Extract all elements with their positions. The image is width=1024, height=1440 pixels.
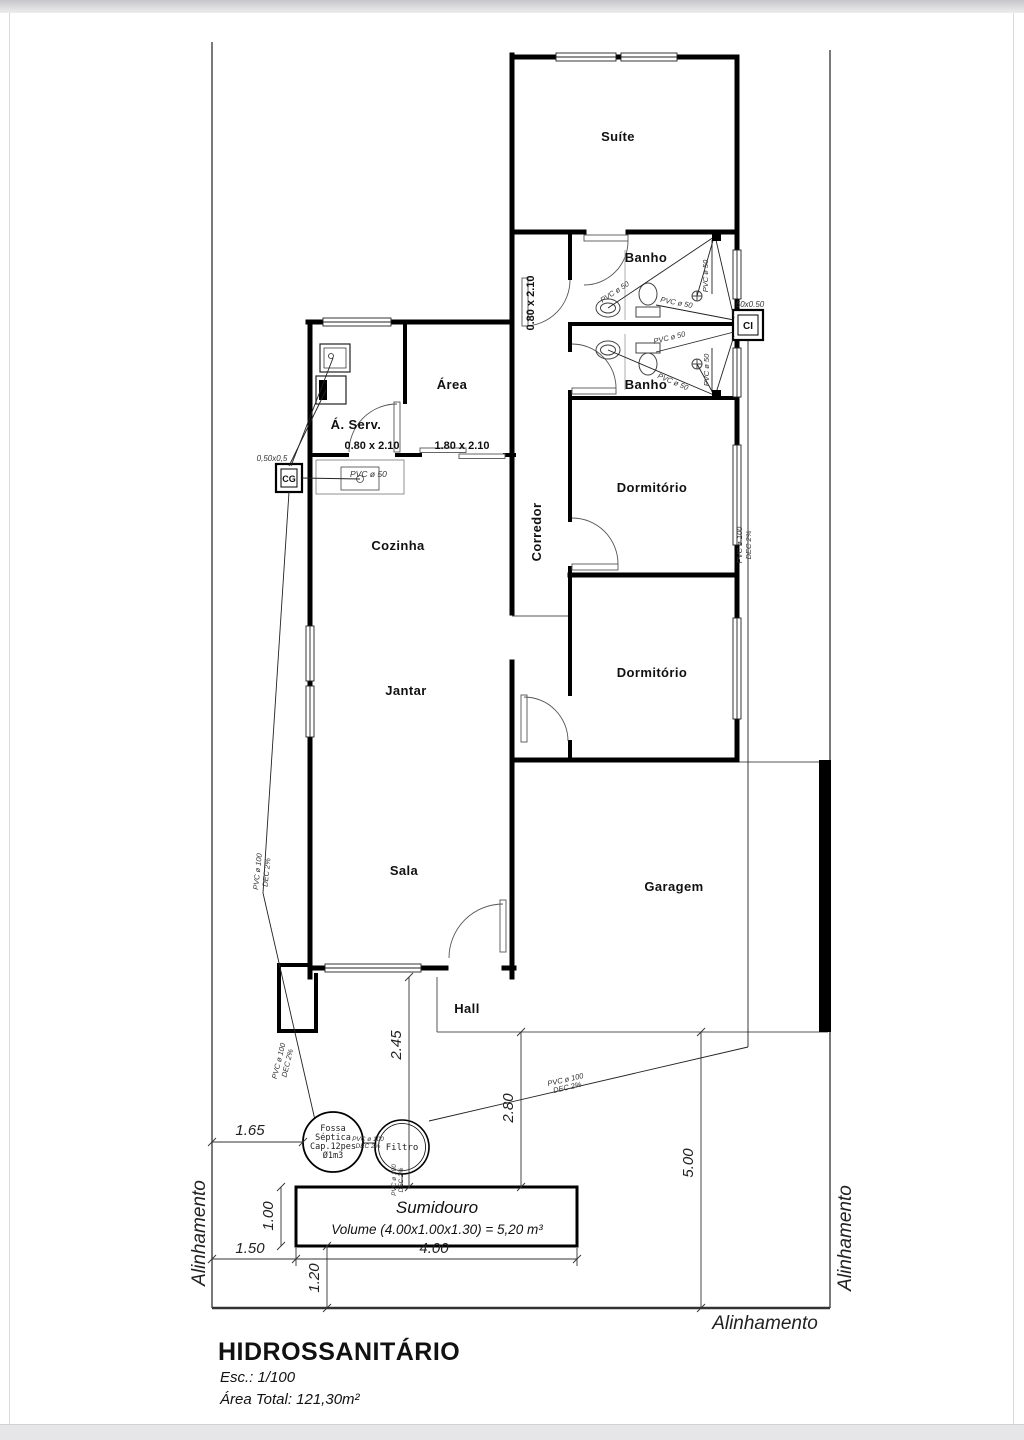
garage-right-pillar <box>819 760 831 1032</box>
room-label-garagem: Garagem <box>644 879 703 894</box>
sumidouro-title: Sumidouro <box>396 1198 478 1217</box>
pipe-label-left-upper: PVC ø 100 DEC 2% <box>251 852 273 891</box>
dim-165: 1.65 <box>235 1122 265 1139</box>
fossa-line4: Ø1m3 <box>323 1150 343 1161</box>
ci-size-label: 50x0.50 <box>736 300 765 309</box>
pipe-label-ci-run: PVC ø 100 DEC 2% <box>735 526 753 564</box>
pipe-label-ci-diagonal: PVC ø 100 DEC 2% <box>547 1071 587 1096</box>
sheet-total-area: Área Total: 121,30m² <box>219 1391 361 1408</box>
drawing-sheet: Fossa Séptica Cap.12pes Ø1m3 Filtro Sumi… <box>0 0 1024 1440</box>
dim-400: 4.00 <box>419 1240 449 1257</box>
windows <box>306 53 741 972</box>
pipe-label-fossa-filtro: PVC ø 100 DEC 2% <box>352 1136 384 1150</box>
dimension-lines <box>208 973 705 1312</box>
alinhamento-bottom: Alinhamento <box>711 1313 818 1334</box>
svg-text:DEC 2%: DEC 2% <box>356 1143 381 1150</box>
room-label-servico: Á. Serv. <box>331 417 382 432</box>
pipe-label-cozinha: PVC ø 50 <box>350 469 387 479</box>
dim-500: 5.00 <box>680 1148 697 1178</box>
svg-text:DEC 2%: DEC 2% <box>260 857 272 887</box>
cg-label: CG <box>282 474 296 484</box>
dim-120: 1.20 <box>306 1263 323 1293</box>
scan-edge-bottom <box>0 1424 1024 1440</box>
sheet-scale: Esc.: 1/100 <box>220 1369 296 1386</box>
alinhamento-left: Alinhamento <box>189 1180 210 1287</box>
door-size-corredor: 0.80 x 2.10 <box>525 275 537 330</box>
doors <box>349 235 628 958</box>
room-label-suite: Suíte <box>601 129 635 144</box>
sumidouro-volume: Volume (4.00x1.00x1.30) = 5,20 m³ <box>331 1222 543 1237</box>
room-label-banho-suite: Banho <box>625 250 667 265</box>
pipe-label-filtro-sumidouro: PVC ø 100 DEC 2% <box>391 1164 405 1196</box>
dim-245: 2.45 <box>388 1030 405 1061</box>
cg-size-label: 0,50x0,5 <box>257 454 288 463</box>
pipe-label-b1-toilet: PVC ø 50 <box>660 295 694 310</box>
svg-text:DEC 2%: DEC 2% <box>398 1167 405 1192</box>
pipe-runs <box>263 232 748 1187</box>
dim-150: 1.50 <box>235 1240 265 1257</box>
dim-280: 2.80 <box>500 1093 517 1124</box>
room-label-cozinha: Cozinha <box>371 538 425 553</box>
pipe-label-b2-drain: PVC ø 50 <box>702 353 711 386</box>
alinhamento-right: Alinhamento <box>835 1185 856 1292</box>
room-label-area: Área <box>437 377 468 392</box>
room-label-jantar: Jantar <box>385 683 426 698</box>
room-label-dorm1: Dormitório <box>617 480 687 495</box>
room-label-dorm2: Dormitório <box>617 665 687 680</box>
pipe-label-left-lower: PVC ø 100 DEC 2% <box>270 1041 297 1082</box>
laundry-tank <box>320 344 350 372</box>
room-label-sala: Sala <box>390 863 419 878</box>
filtro: Filtro <box>375 1120 429 1174</box>
svg-text:PVC ø 100: PVC ø 100 <box>352 1136 384 1143</box>
dim-100: 1.00 <box>260 1201 277 1231</box>
ci-label: CI <box>743 321 753 332</box>
room-label-hall: Hall <box>454 1001 479 1016</box>
door-size-servico: 0.80 x 2.10 <box>344 440 399 452</box>
room-label-corredor: Corredor <box>529 503 544 562</box>
pipe-label-b2-toilet: PVC ø 50 <box>653 329 688 346</box>
svg-text:PVC ø 100: PVC ø 100 <box>735 526 744 564</box>
floor-plan-svg: Fossa Séptica Cap.12pes Ø1m3 Filtro Sumi… <box>0 0 1024 1440</box>
svg-text:PVC ø 100: PVC ø 100 <box>391 1164 398 1196</box>
pipe-label-b1-drain: PVC ø 50 <box>701 259 710 292</box>
sumidouro: Sumidouro Volume (4.00x1.00x1.30) = 5,20… <box>296 1187 577 1246</box>
svg-text:DEC 2%: DEC 2% <box>744 530 753 559</box>
sheet-title: HIDROSSANITÁRIO <box>218 1337 460 1366</box>
filtro-label: Filtro <box>386 1143 419 1153</box>
door-size-area: 1.80 x 2.10 <box>434 440 489 452</box>
